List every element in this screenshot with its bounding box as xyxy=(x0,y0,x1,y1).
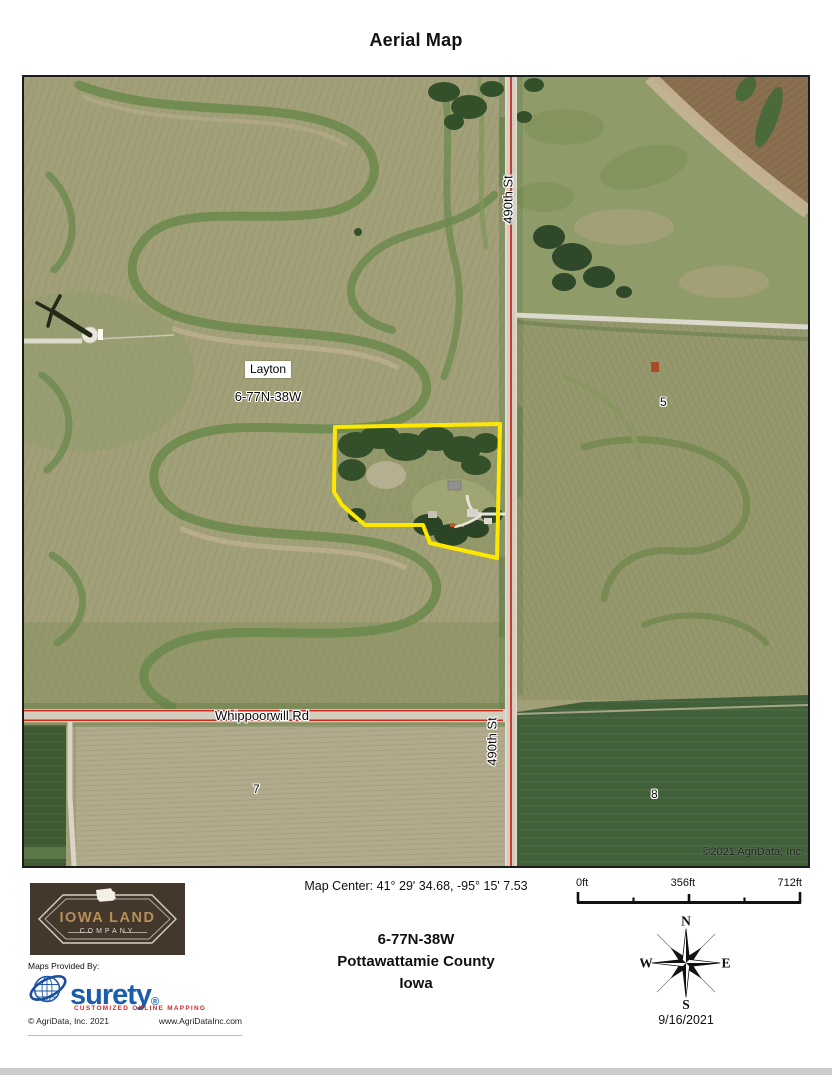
road-label-490th-south: 490th St xyxy=(485,707,500,777)
iowa-land-company-logo: IOWA LAND COMPANY xyxy=(30,883,185,955)
page-title: Aerial Map xyxy=(0,30,832,51)
scale-label-start: 0ft xyxy=(576,877,588,889)
scale-label-mid: 356ft xyxy=(671,877,695,889)
map-date: 9/16/2021 xyxy=(640,1013,732,1027)
scale-label-end: 712ft xyxy=(778,877,802,889)
compass-n-label: N xyxy=(681,915,691,929)
provider-website: www.AgriDataInc.com xyxy=(159,1016,242,1026)
provider-copyright: © AgriData, Inc. 2021 xyxy=(28,1016,109,1026)
state-name: Iowa xyxy=(216,973,616,995)
section-number-7: 7 xyxy=(253,782,260,796)
surety-tagline: CUSTOMIZED ONLINE MAPPING xyxy=(74,1005,242,1012)
compass-w-label: W xyxy=(640,956,653,971)
map-copyright: ©2021 AgriData, Inc. xyxy=(702,846,804,858)
iowa-land-logo-text: IOWA LAND xyxy=(30,910,185,926)
iowa-land-logo-subtext: COMPANY xyxy=(30,928,185,935)
road-label-whippoorwill: Whippoorwill Rd xyxy=(192,708,332,723)
iowa-state-icon xyxy=(96,888,116,902)
surety-globe-icon xyxy=(28,970,70,1008)
aerial-map-page: Aerial Map xyxy=(0,0,832,1080)
township-id: 6-77N-38W xyxy=(216,929,616,951)
scale-bar: 0ft 356ft 712ft xyxy=(576,877,802,910)
surety-provider-block: Maps Provided By: surety® CUSTOMIZED ONL… xyxy=(28,961,242,1036)
compass-s-label: S xyxy=(682,997,690,1011)
township-map-label: 6-77N-38W xyxy=(213,389,323,404)
town-label: Layton xyxy=(245,361,291,378)
compass-e-label: E xyxy=(721,956,730,971)
location-block: 6-77N-38W Pottawattamie County Iowa xyxy=(216,929,616,995)
section-number-5: 5 xyxy=(660,395,667,409)
map-center-coordinates: Map Center: 41° 29' 34.68, -95° 15' 7.53 xyxy=(216,879,616,893)
aerial-imagery-art xyxy=(24,77,808,866)
county-name: Pottawattamie County xyxy=(216,951,616,973)
bottom-divider xyxy=(0,1068,832,1075)
aerial-map: Layton 6-77N-38W 490th St 490th St Whipp… xyxy=(22,75,810,868)
compass-rose: N E S W xyxy=(640,915,732,1011)
section-number-8: 8 xyxy=(651,787,658,801)
aerial-map-image: Layton 6-77N-38W 490th St 490th St Whipp… xyxy=(24,77,808,866)
scale-bar-ruler xyxy=(576,890,802,905)
road-label-490th-north: 490th St xyxy=(501,165,516,235)
